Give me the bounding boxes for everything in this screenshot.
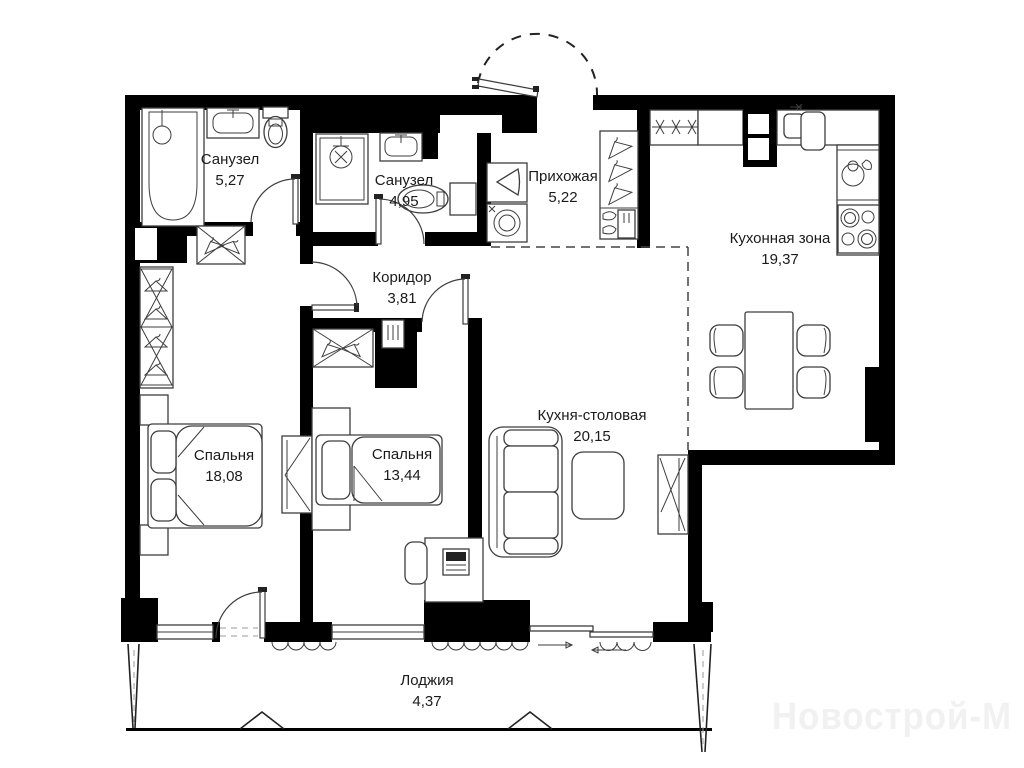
washing-machine-icon — [487, 204, 527, 242]
loggia-door — [216, 587, 267, 638]
desk — [405, 538, 483, 602]
room-label-bathroom-2: Санузел 4,95 — [375, 170, 433, 212]
room-name: Прихожая — [528, 166, 598, 187]
corridor-shelf-unit — [382, 320, 404, 348]
glazing-triangle — [508, 712, 552, 729]
sink-icon — [380, 133, 422, 161]
watermark: Новострой-М — [772, 696, 1012, 739]
kitchen-counter — [698, 110, 743, 145]
floor-plan: Санузел 5,27 Санузел 4,95 Прихожая 5,22 … — [0, 0, 1024, 768]
bedroom-1 — [140, 226, 312, 638]
loggia-rail — [126, 728, 712, 731]
chair — [710, 367, 743, 398]
room-label-loggia: Лоджия 4,37 — [400, 670, 453, 712]
dining-set — [710, 312, 830, 409]
pillow — [151, 431, 176, 473]
monitor-icon — [443, 549, 469, 575]
room-label-hallway: Прихожая 5,22 — [528, 166, 598, 208]
room-area: 19,37 — [730, 249, 831, 270]
utility-niche — [487, 163, 527, 242]
room-label-bedroom-2: Спальня 13,44 — [372, 444, 432, 486]
glazing-triangle — [240, 712, 284, 729]
room-label-corridor: Коридор 3,81 — [372, 267, 431, 309]
stove-icon — [838, 205, 879, 253]
tall-wardrobe — [140, 267, 173, 388]
room-label-kitchen-dining: Кухня-столовая 20,15 — [538, 405, 647, 447]
room-name: Спальня — [372, 444, 432, 465]
bathtub-icon — [142, 108, 204, 226]
room-area: 5,27 — [201, 170, 259, 191]
coffee-table — [572, 452, 624, 519]
window — [332, 625, 424, 639]
dining-table — [745, 312, 793, 409]
room-name: Коридор — [372, 267, 431, 288]
pillow — [322, 441, 350, 499]
nightstand — [140, 525, 168, 555]
room-label-bathroom-1: Санузел 5,27 — [201, 149, 259, 191]
chair — [797, 367, 830, 398]
glazing-spike — [694, 644, 711, 752]
room-name: Санузел — [201, 149, 259, 170]
chair — [797, 325, 830, 356]
bedroom-1-door — [312, 262, 359, 312]
room-area: 13,44 — [372, 465, 432, 486]
room-area: 3,81 — [372, 288, 431, 309]
chair — [710, 325, 743, 356]
wardrobe-mirror — [658, 455, 688, 534]
entrance-door — [472, 34, 597, 97]
room-area: 20,15 — [538, 426, 647, 447]
nightstand — [140, 395, 168, 425]
toilet-icon — [263, 107, 288, 148]
room-label-kitchen-zone: Кухонная зона 19,37 — [730, 228, 831, 270]
room-area: 4,37 — [400, 691, 453, 712]
wardrobe-x — [197, 226, 245, 264]
utility-sink-icon — [487, 163, 527, 202]
sink-icon — [207, 108, 259, 138]
wardrobe-mirror — [282, 436, 312, 513]
room-name: Санузел — [375, 170, 433, 191]
room-name: Лоджия — [400, 670, 453, 691]
desk-chair — [405, 542, 427, 584]
room-area: 4,95 — [375, 191, 433, 212]
pillow — [151, 479, 176, 521]
room-area: 18,08 — [194, 466, 254, 487]
shower-icon — [316, 134, 368, 204]
room-area: 5,22 — [528, 187, 598, 208]
room-label-bedroom-1: Спальня 18,08 — [194, 445, 254, 487]
glazing-spike — [128, 644, 139, 728]
hallway-wardrobe — [600, 131, 638, 239]
wardrobe-x — [313, 329, 373, 367]
plan-drawing — [0, 0, 1024, 768]
bottom-wall — [157, 625, 653, 653]
window — [157, 625, 213, 639]
room-name: Кухня-столовая — [538, 405, 647, 426]
sliding-door — [530, 626, 653, 653]
room-name: Спальня — [194, 445, 254, 466]
room-name: Кухонная зона — [730, 228, 831, 249]
